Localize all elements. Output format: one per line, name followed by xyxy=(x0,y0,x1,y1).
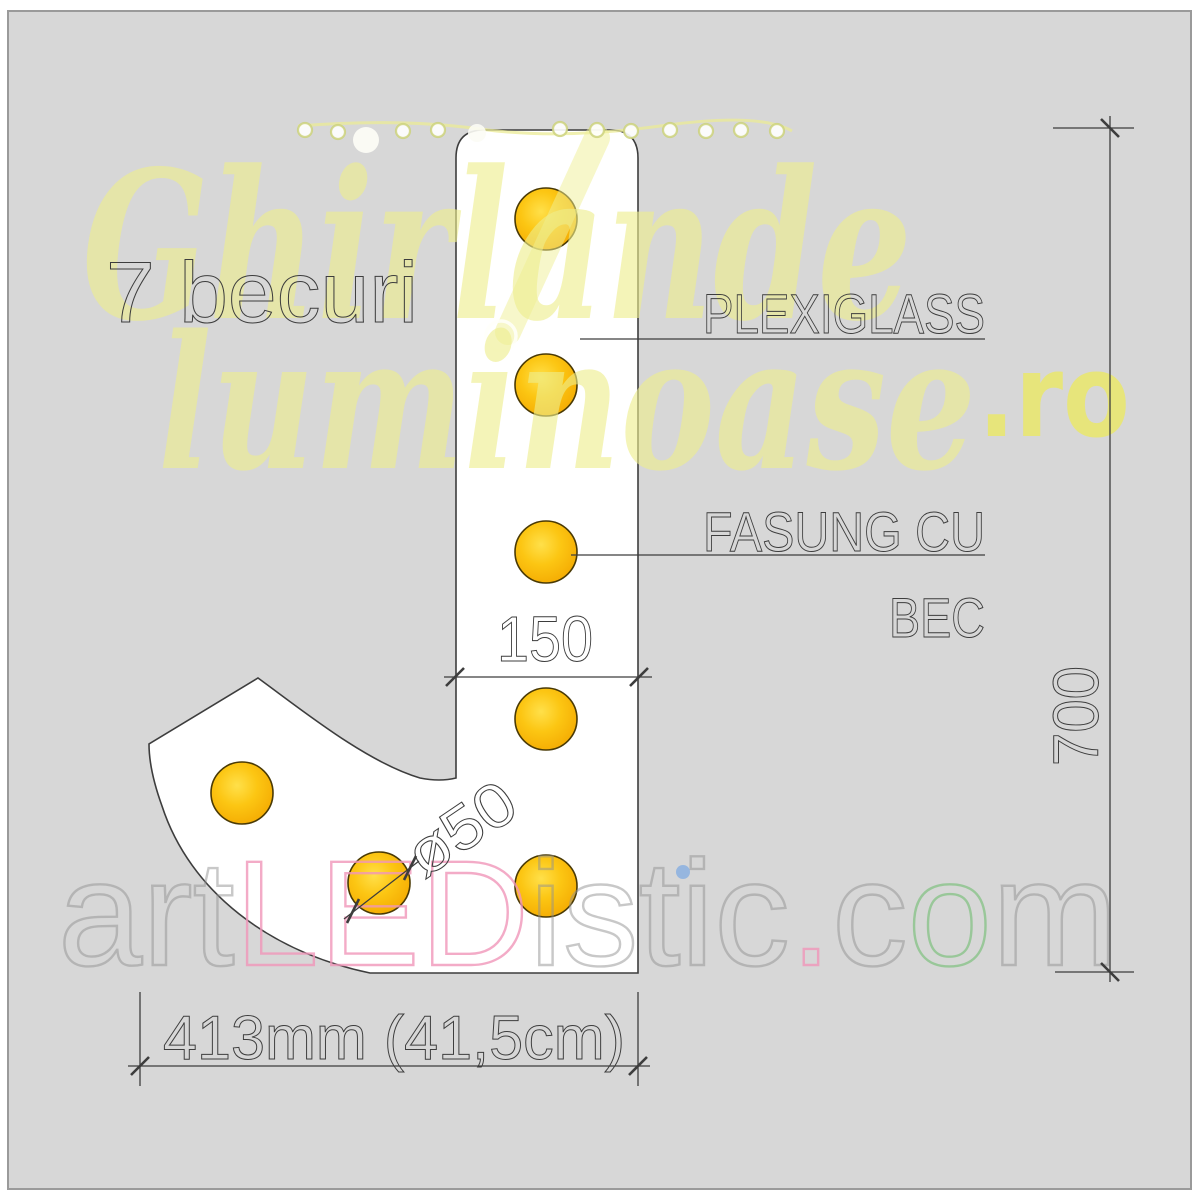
dim-text-700: 700 xyxy=(1040,666,1112,766)
watermark-brand-tld: .ro xyxy=(978,330,1130,464)
drawing-canvas: Ghirlande luminoase .ro artLEDistic.com … xyxy=(0,0,1200,1200)
dim-text-150: 150 xyxy=(497,603,593,675)
technical-drawing-page: Ghirlande luminoase .ro artLEDistic.com … xyxy=(0,0,1200,1200)
drawing-title-label: 7 becuri xyxy=(106,245,418,341)
bulb-7 xyxy=(211,762,273,824)
callout-socket-label-line2: BEC xyxy=(889,586,985,649)
watermark-footer: artLEDistic.com xyxy=(58,829,1118,997)
bulb-3 xyxy=(515,521,577,583)
watermark-footer-istic: istic xyxy=(529,829,790,997)
watermark-footer-art: art xyxy=(58,829,235,997)
watermark-footer-dot: . xyxy=(790,829,832,997)
watermark-footer-c: c xyxy=(832,829,908,997)
callout-socket-label-line1: FASUNG CU xyxy=(703,500,985,563)
watermark-footer-o: o xyxy=(908,829,992,997)
dim-text-413: 413mm (41,5cm) xyxy=(163,1004,625,1073)
bulb-4 xyxy=(515,688,577,750)
callout-plexiglass-label: PLEXIGLASS xyxy=(703,282,985,345)
watermark-i-dot-blue xyxy=(676,865,690,879)
